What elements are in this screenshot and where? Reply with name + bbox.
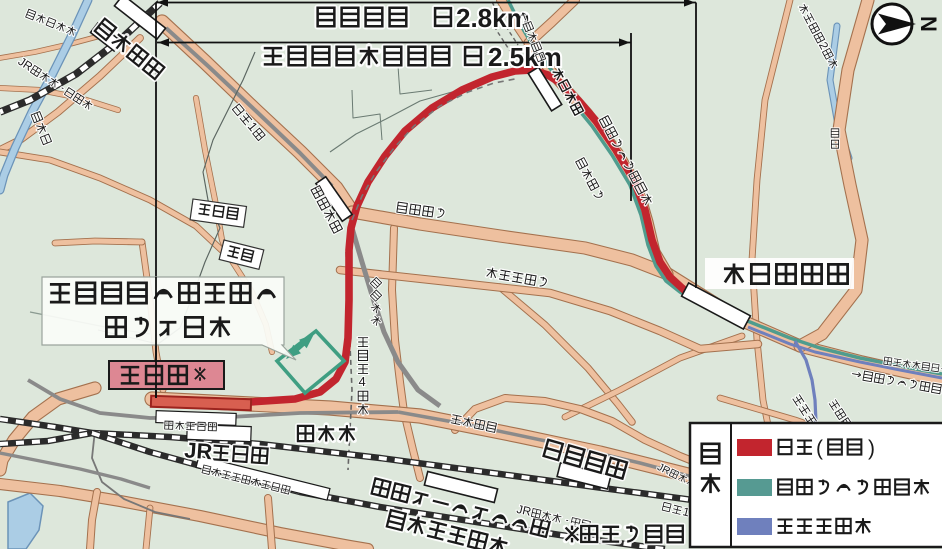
svg-text:): ) xyxy=(868,437,875,460)
svg-text:2.5km: 2.5km xyxy=(488,42,562,72)
svg-text:2.8km: 2.8km xyxy=(456,3,530,33)
svg-text:(: ( xyxy=(816,437,823,460)
svg-text:JR: JR xyxy=(184,437,214,464)
svg-text:N: N xyxy=(916,16,941,32)
svg-text:4: 4 xyxy=(359,374,366,389)
